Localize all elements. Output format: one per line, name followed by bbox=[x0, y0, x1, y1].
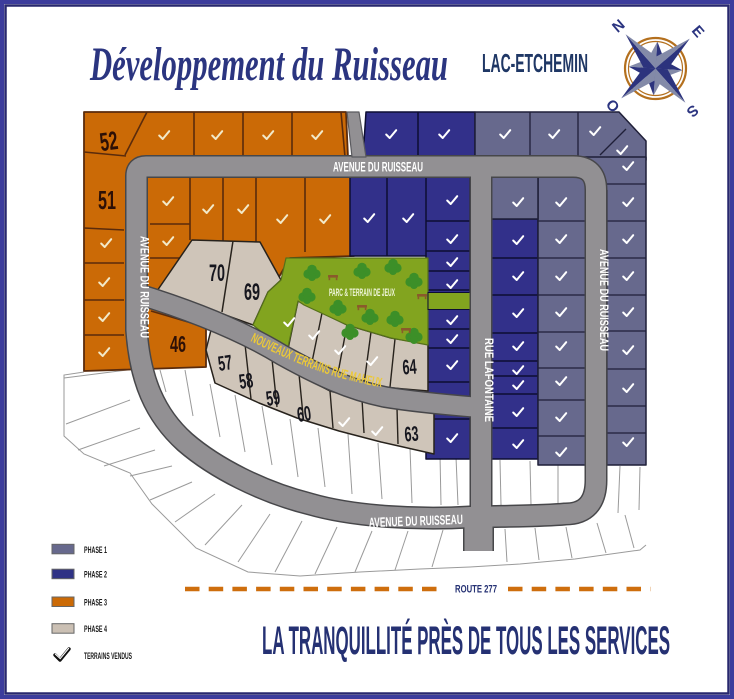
svg-text:64: 64 bbox=[402, 356, 418, 380]
svg-text:TERRAINS VENDUS: TERRAINS VENDUS bbox=[84, 651, 132, 662]
svg-text:51: 51 bbox=[98, 185, 116, 215]
svg-text:Développement du Ruisseau: Développement du Ruisseau bbox=[89, 38, 448, 91]
svg-text:PHASE 3: PHASE 3 bbox=[84, 598, 107, 609]
svg-text:70: 70 bbox=[209, 260, 225, 287]
svg-text:PARC & TERRAIN DE JEUX: PARC & TERRAIN DE JEUX bbox=[329, 287, 395, 299]
svg-text:AVENUE DU RUISSEAU: AVENUE DU RUISSEAU bbox=[333, 160, 423, 175]
svg-text:LA TRANQUILLITÉ PRÈS DE TOUS L: LA TRANQUILLITÉ PRÈS DE TOUS LES SERVICE… bbox=[262, 618, 670, 663]
svg-text:PHASE 2: PHASE 2 bbox=[84, 570, 107, 581]
svg-text:PHASE 1: PHASE 1 bbox=[84, 545, 107, 556]
svg-text:LAC-ETCHEMIN: LAC-ETCHEMIN bbox=[482, 48, 588, 78]
svg-text:PHASE 4: PHASE 4 bbox=[84, 624, 107, 635]
svg-text:ROUTE 277: ROUTE 277 bbox=[455, 584, 497, 596]
svg-text:46: 46 bbox=[170, 331, 186, 357]
svg-text:69: 69 bbox=[244, 279, 260, 306]
svg-text:AVENUE DU RUISSEAU: AVENUE DU RUISSEAU bbox=[138, 236, 150, 338]
svg-text:AVENUE DU RUISSEAU: AVENUE DU RUISSEAU bbox=[597, 249, 609, 351]
svg-text:RUE LAFONTAINE: RUE LAFONTAINE bbox=[482, 338, 496, 422]
svg-text:63: 63 bbox=[404, 423, 420, 447]
